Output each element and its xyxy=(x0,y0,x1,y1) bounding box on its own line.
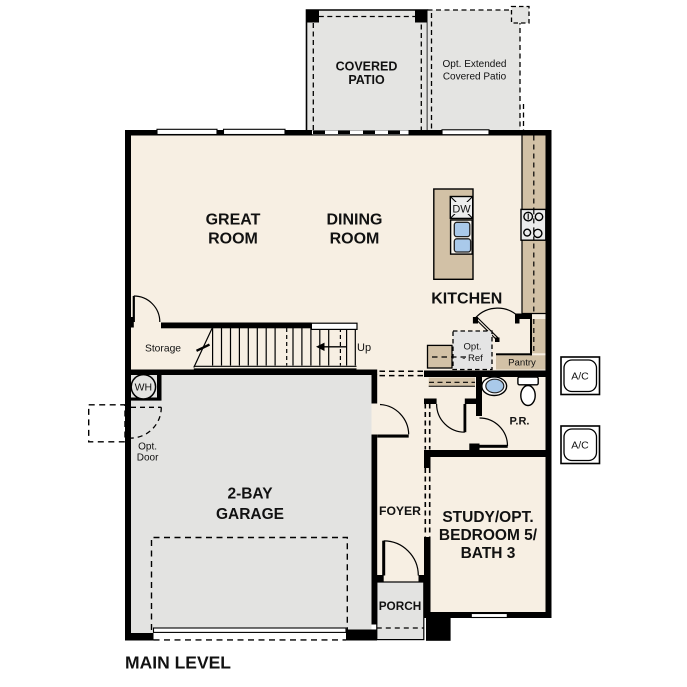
svg-text:DW: DW xyxy=(452,204,471,216)
svg-text:KITCHEN: KITCHEN xyxy=(431,290,502,307)
svg-text:BEDROOM 5/: BEDROOM 5/ xyxy=(439,527,538,544)
svg-text:FOYER: FOYER xyxy=(379,504,421,518)
svg-text:PORCH: PORCH xyxy=(379,599,422,613)
svg-text:BATH 3: BATH 3 xyxy=(461,545,516,562)
svg-text:Covered Patio: Covered Patio xyxy=(443,71,507,82)
svg-text:ROOM: ROOM xyxy=(208,231,258,248)
svg-text:Storage: Storage xyxy=(145,344,181,355)
svg-text:Opt.: Opt. xyxy=(464,341,482,352)
svg-text:A/C: A/C xyxy=(571,440,589,452)
svg-text:ROOM: ROOM xyxy=(330,231,380,248)
svg-text:GARAGE: GARAGE xyxy=(216,506,284,523)
svg-text:- Ref: - Ref xyxy=(462,353,483,364)
svg-text:GREAT: GREAT xyxy=(206,212,261,229)
svg-text:PATIO: PATIO xyxy=(348,73,385,87)
svg-text:Up: Up xyxy=(357,342,371,354)
svg-text:DINING: DINING xyxy=(327,212,383,229)
svg-text:STUDY/OPT.: STUDY/OPT. xyxy=(442,509,533,526)
svg-text:WH: WH xyxy=(135,382,153,394)
svg-text:Opt.: Opt. xyxy=(138,441,157,452)
svg-text:Door: Door xyxy=(137,452,159,463)
svg-text:MAIN LEVEL: MAIN LEVEL xyxy=(125,653,231,673)
svg-text:A/C: A/C xyxy=(571,371,589,383)
svg-text:Pantry: Pantry xyxy=(508,357,536,368)
svg-text:Opt. Extended: Opt. Extended xyxy=(443,59,507,70)
svg-text:P.R.: P.R. xyxy=(510,415,530,427)
svg-text:COVERED: COVERED xyxy=(336,59,398,73)
svg-text:2-BAY: 2-BAY xyxy=(227,486,273,503)
